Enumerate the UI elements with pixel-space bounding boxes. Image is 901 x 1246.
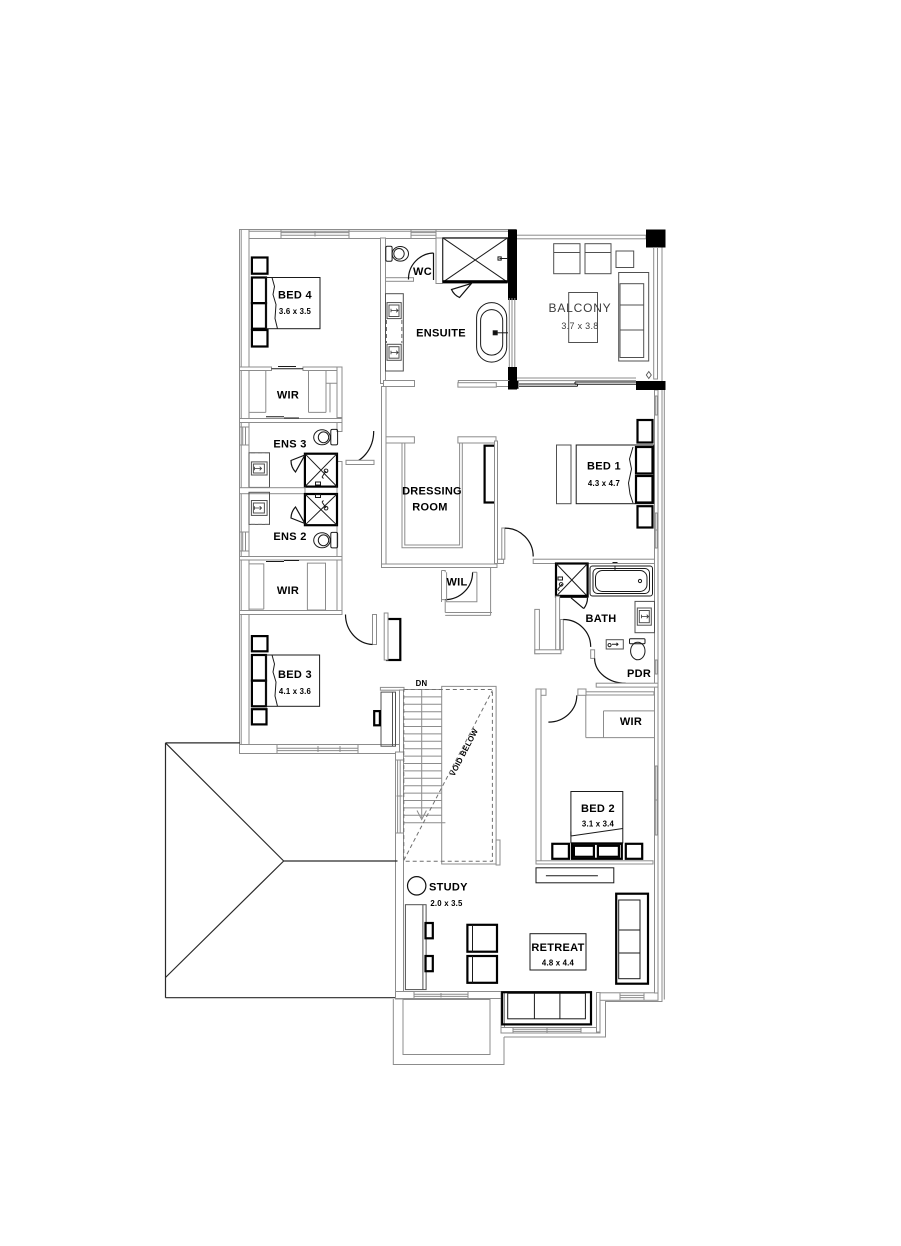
svg-text:2.0 x 3.5: 2.0 x 3.5	[430, 899, 463, 908]
svg-text:BALCONY: BALCONY	[549, 301, 612, 315]
svg-text:WC: WC	[413, 266, 432, 278]
svg-text:3.7 x 3.8: 3.7 x 3.8	[561, 321, 598, 331]
svg-text:DN: DN	[416, 679, 428, 688]
svg-text:PDR: PDR	[627, 668, 651, 680]
svg-text:BED 3: BED 3	[278, 669, 312, 681]
svg-text:BED 4: BED 4	[278, 290, 312, 302]
svg-text:BED 2: BED 2	[581, 803, 615, 815]
svg-text:ROOM: ROOM	[412, 502, 447, 514]
svg-text:4.3 x 4.7: 4.3 x 4.7	[588, 479, 620, 488]
svg-text:4.8 x 4.4: 4.8 x 4.4	[542, 959, 575, 968]
svg-text:VOID BELOW: VOID BELOW	[448, 727, 480, 778]
svg-text:BATH: BATH	[586, 613, 617, 625]
svg-text:ENS 3: ENS 3	[273, 439, 306, 451]
svg-text:3.1 x 3.4: 3.1 x 3.4	[582, 820, 615, 829]
svg-text:DRESSING: DRESSING	[402, 486, 462, 498]
svg-text:3.6 x 3.5: 3.6 x 3.5	[279, 307, 312, 316]
svg-text:WIL: WIL	[446, 577, 467, 589]
svg-text:ENS 2: ENS 2	[273, 531, 306, 543]
svg-text:WIR: WIR	[277, 390, 299, 402]
svg-text:4.1 x 3.6: 4.1 x 3.6	[279, 687, 312, 696]
svg-text:RETREAT: RETREAT	[531, 942, 584, 954]
svg-text:BED 1: BED 1	[587, 461, 621, 473]
svg-text:STUDY: STUDY	[429, 882, 468, 894]
svg-text:ENSUITE: ENSUITE	[416, 328, 466, 340]
svg-text:WIR: WIR	[620, 716, 642, 728]
svg-text:WIR: WIR	[277, 585, 299, 597]
